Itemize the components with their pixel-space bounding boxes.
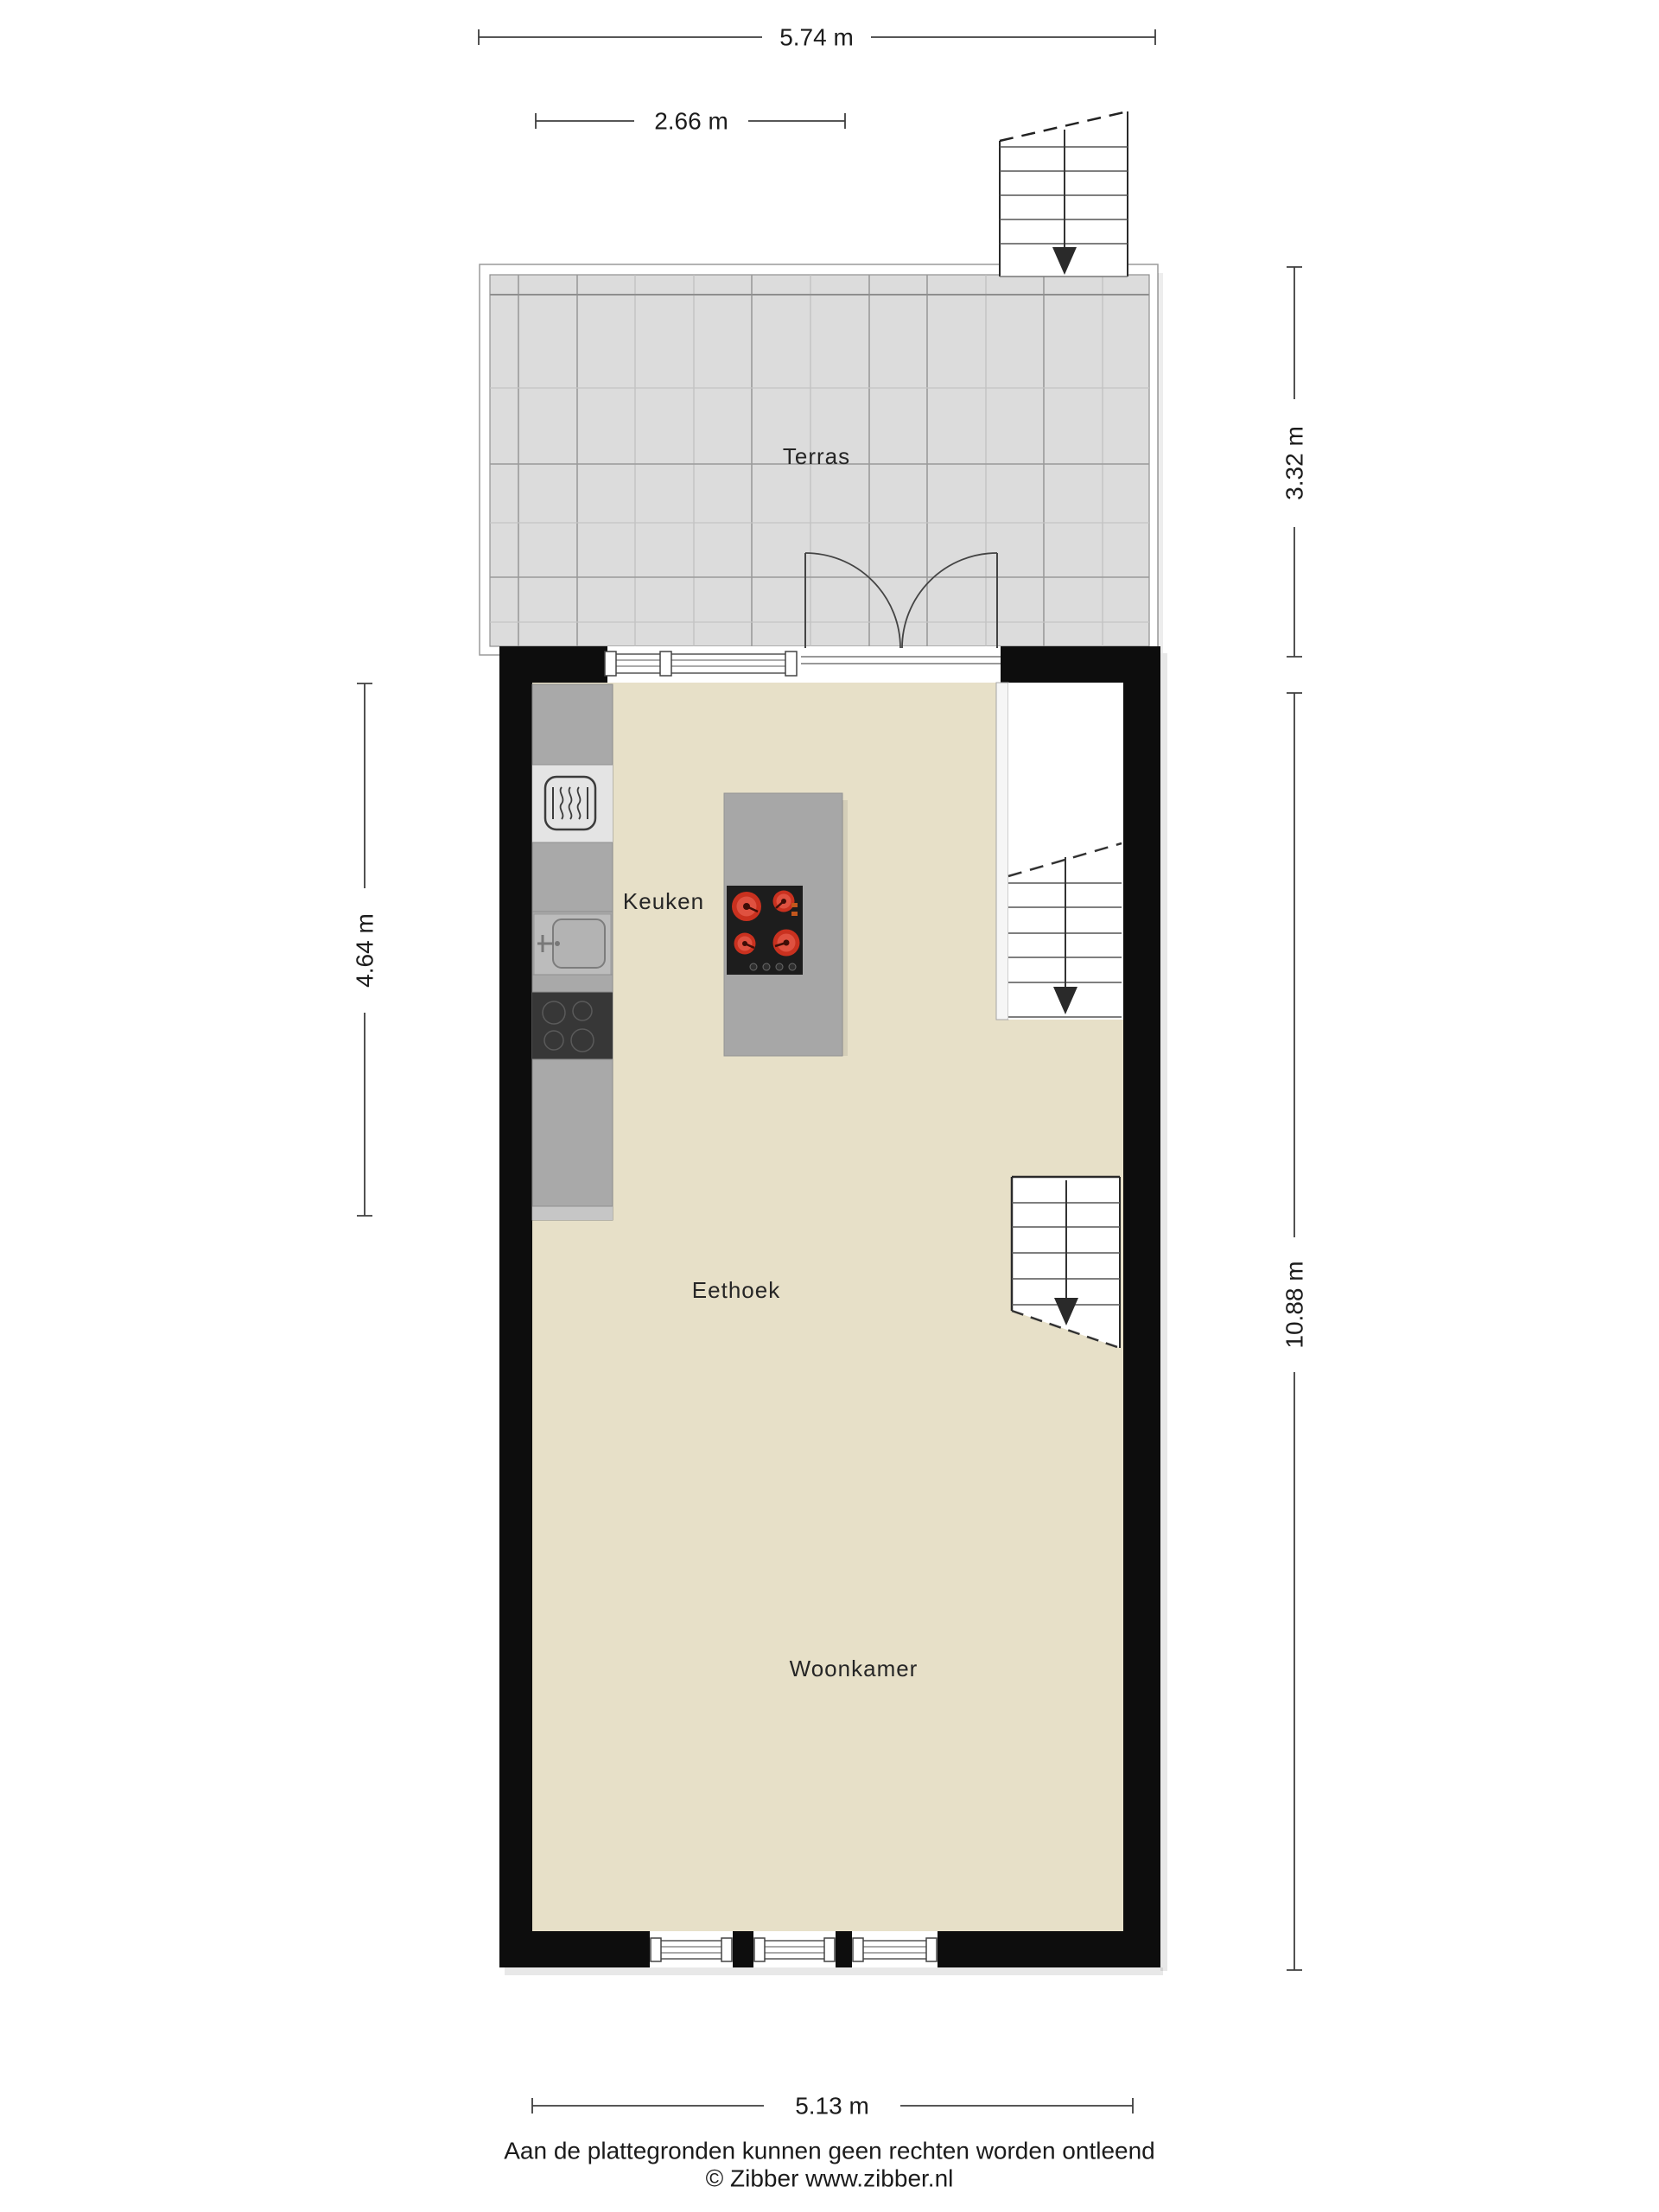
room-label-eethoek: Eethoek (692, 1277, 780, 1303)
floorplan-page: Terras Keuken Eethoek Woonkamer (0, 0, 1659, 2212)
dimension-bottom-label: 5.13 m (795, 2093, 869, 2120)
wall-shadow-bottom (505, 1967, 1163, 1975)
dimension-top-inner-label: 2.66 m (654, 108, 728, 135)
dimension-left-label: 4.64 m (352, 913, 378, 988)
exterior-stairs (1000, 111, 1128, 276)
footer-disclaimer: Aan de plattegronden kunnen geen rechten… (504, 2138, 1154, 2164)
wall-left (499, 646, 532, 1967)
window (753, 1931, 836, 1967)
counter-cooktop-icon (532, 992, 613, 1059)
sink-icon (534, 914, 611, 975)
wall-right (1123, 646, 1160, 1967)
window (852, 1931, 938, 1967)
window (650, 1931, 733, 1967)
wall-top-left-segment (499, 646, 607, 683)
bottom-windows (650, 1931, 938, 1967)
room-label-keuken: Keuken (623, 888, 704, 914)
wall-shadow-right (1160, 653, 1167, 1971)
terrace-shadow (1158, 273, 1163, 653)
interior-stairs-upper (996, 683, 1123, 1020)
dimension-right-bottom-label: 10.88 m (1281, 1261, 1308, 1348)
dimension-top-label: 5.74 m (779, 24, 854, 51)
dimension-right-top-label: 3.32 m (1281, 426, 1308, 500)
top-window (605, 646, 801, 683)
floorplan-canvas: Terras Keuken Eethoek Woonkamer (0, 0, 1659, 2212)
room-label-woonkamer: Woonkamer (790, 1656, 918, 1681)
island-cooktop-icon (727, 886, 803, 975)
kitchen-counter (532, 684, 613, 1220)
stair-side-wall (996, 683, 1008, 1020)
room-label-terras: Terras (783, 443, 850, 469)
kitchen-island (724, 793, 848, 1056)
wall-top-right-segment (1001, 646, 1160, 683)
footer-copyright: © Zibber www.zibber.nl (706, 2165, 954, 2192)
